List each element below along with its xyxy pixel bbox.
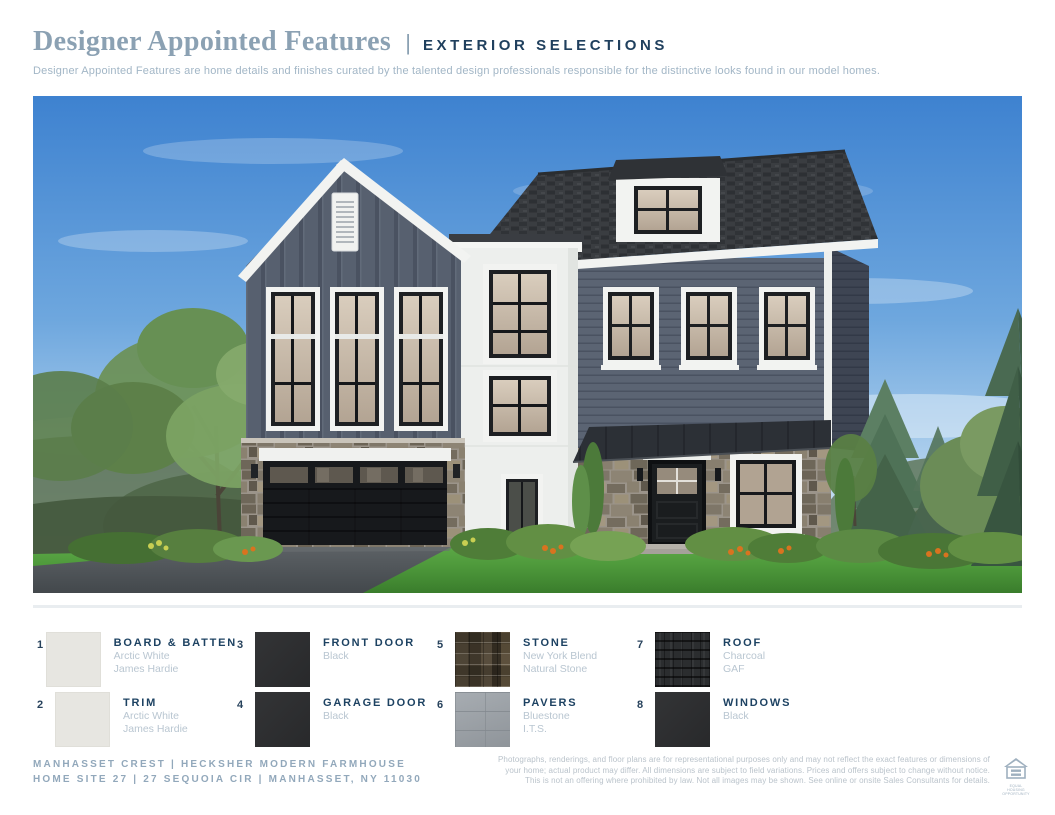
legend-item-title: PAVERS <box>523 697 577 709</box>
legend-item-sub: Charcoal <box>723 650 765 662</box>
legend-item-title: STONE <box>523 637 597 649</box>
legend-item-title: WINDOWS <box>723 697 791 709</box>
legend-item-sub: Arctic White <box>114 650 237 662</box>
legend-item-board-batten: 1 BOARD & BATTEN Arctic White James Hard… <box>37 632 237 692</box>
house-rendering-image <box>33 96 1022 593</box>
legend-item-title: GARAGE DOOR <box>323 697 427 709</box>
legend-item-number: 3 <box>237 632 255 651</box>
divider-line <box>33 605 1022 608</box>
eho-label-line1: EQUAL HOUSING <box>1001 784 1031 792</box>
legend-item-windows: 8 WINDOWS Black <box>637 692 837 752</box>
legend-item-sub: Arctic White <box>123 710 188 722</box>
header: Designer Appointed Features | EXTERIOR S… <box>33 26 1023 77</box>
legend-item-number: 5 <box>437 632 455 651</box>
legend-item-sub: Bluestone <box>523 710 577 722</box>
legend-item-pavers: 6 PAVERS Bluestone I.T.S. <box>437 692 637 752</box>
swatch-garage-door <box>255 692 310 747</box>
page-description: Designer Appointed Features are home det… <box>33 65 1023 77</box>
legend-item-sub: Natural Stone <box>523 663 597 675</box>
swatch-roof <box>655 632 710 687</box>
legend-item-sub: Black <box>723 710 791 722</box>
equal-housing-logo: EQUAL HOUSING OPPORTUNITY <box>1001 757 1031 796</box>
legend-item-sub: Black <box>323 710 427 722</box>
legend-item-number: 1 <box>37 632 46 651</box>
legend-item-front-door: 3 FRONT DOOR Black <box>237 632 437 692</box>
legend-item-trim: 2 TRIM Arctic White James Hardie <box>37 692 237 752</box>
legend-item-title: ROOF <box>723 637 765 649</box>
disclaimer-line: This is not an offering where prohibited… <box>430 776 990 787</box>
legend-item-garage-door: 4 GARAGE DOOR Black <box>237 692 437 752</box>
legend-item-sub: I.T.S. <box>523 723 577 735</box>
disclaimer-line: Photographs, renderings, and floor plans… <box>430 755 990 766</box>
page: Designer Appointed Features | EXTERIOR S… <box>0 0 1055 815</box>
legal-disclaimer: Photographs, renderings, and floor plans… <box>430 755 990 787</box>
legend-item-sub: New York Blend <box>523 650 597 662</box>
selections-legend: 1 BOARD & BATTEN Arctic White James Hard… <box>37 632 837 752</box>
page-title: Designer Appointed Features <box>33 26 391 58</box>
page-subtitle-tag: EXTERIOR SELECTIONS <box>423 37 668 54</box>
title-divider: | <box>405 30 411 56</box>
community-line2: HOME SITE 27 | 27 SEQUOIA CIR | MANHASSE… <box>33 772 422 787</box>
legend-item-number: 8 <box>637 692 655 711</box>
legend-item-sub: James Hardie <box>123 723 188 735</box>
legend-item-number: 7 <box>637 632 655 651</box>
legend-item-sub: James Hardie <box>114 663 237 675</box>
legend-item-stone: 5 STONE New York Blend Natural Stone <box>437 632 637 692</box>
swatch-board-batten <box>46 632 101 687</box>
swatch-stone <box>455 632 510 687</box>
legend-item-sub: GAF <box>723 663 765 675</box>
legend-item-number: 2 <box>37 692 55 711</box>
swatch-pavers <box>455 692 510 747</box>
legend-item-sub: Black <box>323 650 415 662</box>
community-info: MANHASSET CREST | HECKSHER MODERN FARMHO… <box>33 757 422 787</box>
legend-item-number: 4 <box>237 692 255 711</box>
community-line1: MANHASSET CREST | HECKSHER MODERN FARMHO… <box>33 757 422 772</box>
swatch-trim <box>55 692 110 747</box>
legend-item-title: BOARD & BATTEN <box>114 637 237 649</box>
legend-item-roof: 7 ROOF Charcoal GAF <box>637 632 837 692</box>
legend-item-number: 6 <box>437 692 455 711</box>
disclaimer-line: your home; actual product may differ. Al… <box>430 766 990 777</box>
legend-item-title: TRIM <box>123 697 188 709</box>
eho-label-line2: OPPORTUNITY <box>1001 792 1031 796</box>
equal-housing-icon <box>1002 757 1030 779</box>
swatch-windows <box>655 692 710 747</box>
swatch-front-door <box>255 632 310 687</box>
legend-item-title: FRONT DOOR <box>323 637 415 649</box>
